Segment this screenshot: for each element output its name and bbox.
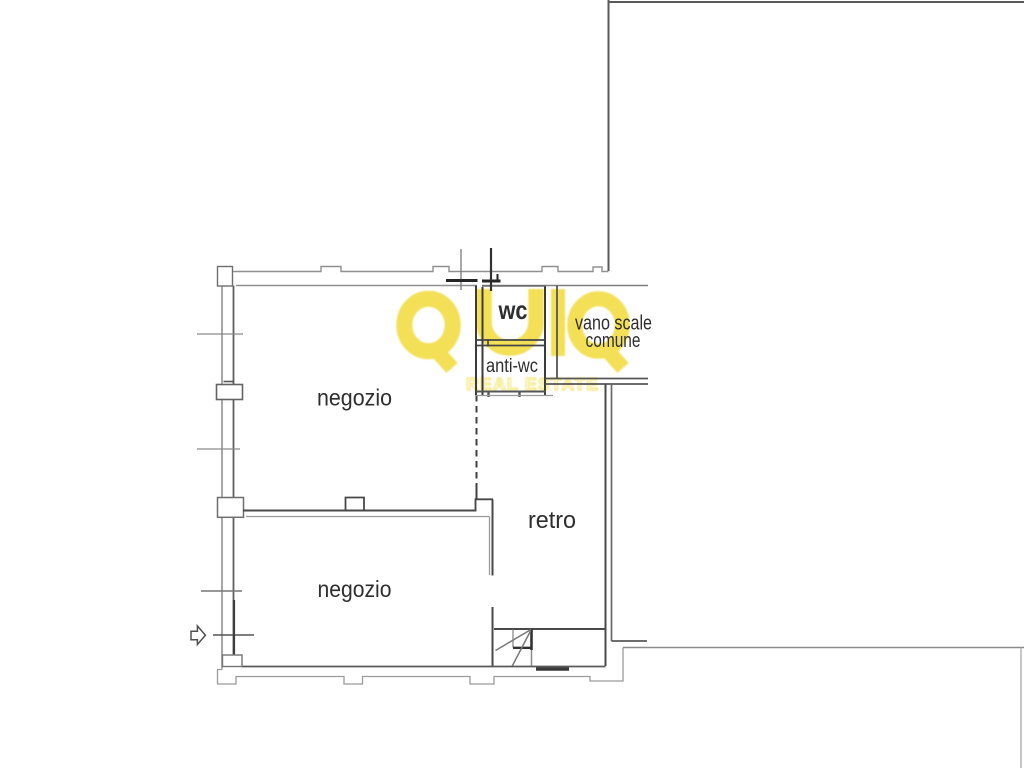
svg-text:comune: comune: [586, 329, 641, 352]
svg-text:retro: retro: [528, 507, 576, 534]
svg-text:negozio: negozio: [318, 576, 392, 602]
svg-text:negozio: negozio: [317, 385, 392, 411]
svg-text:anti-wc: anti-wc: [486, 356, 538, 377]
svg-text:wc: wc: [498, 295, 528, 325]
